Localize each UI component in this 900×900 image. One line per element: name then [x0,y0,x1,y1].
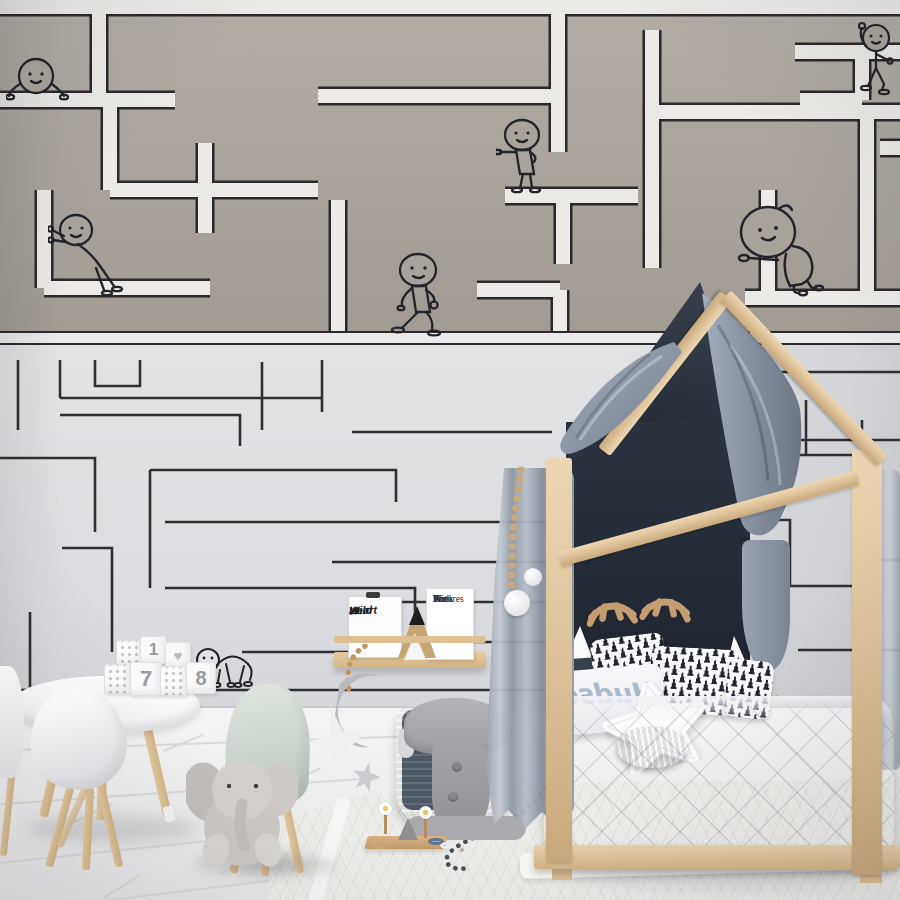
peg-doll [384,812,387,834]
bead-garland-hanging [0,0,900,900]
garland-ball-small [524,568,542,586]
toy-block-number: 7 [130,662,162,696]
peg-doll [424,816,427,838]
daisy-flower-toy [379,802,392,815]
plush-elephant [186,748,298,868]
toy-block-dots [104,664,132,694]
garland-ball-large [504,590,530,616]
photo-kids-room: Wild at Heart The Book With No Pictures [0,0,900,900]
toy-block-number: 8 [186,662,216,694]
toy-block-dots [160,666,188,696]
ring-toy-wood [372,842,387,849]
toy-block-number: 1 [140,636,167,664]
ring-toy-white [440,842,455,849]
daisy-flower-toy [419,806,432,819]
